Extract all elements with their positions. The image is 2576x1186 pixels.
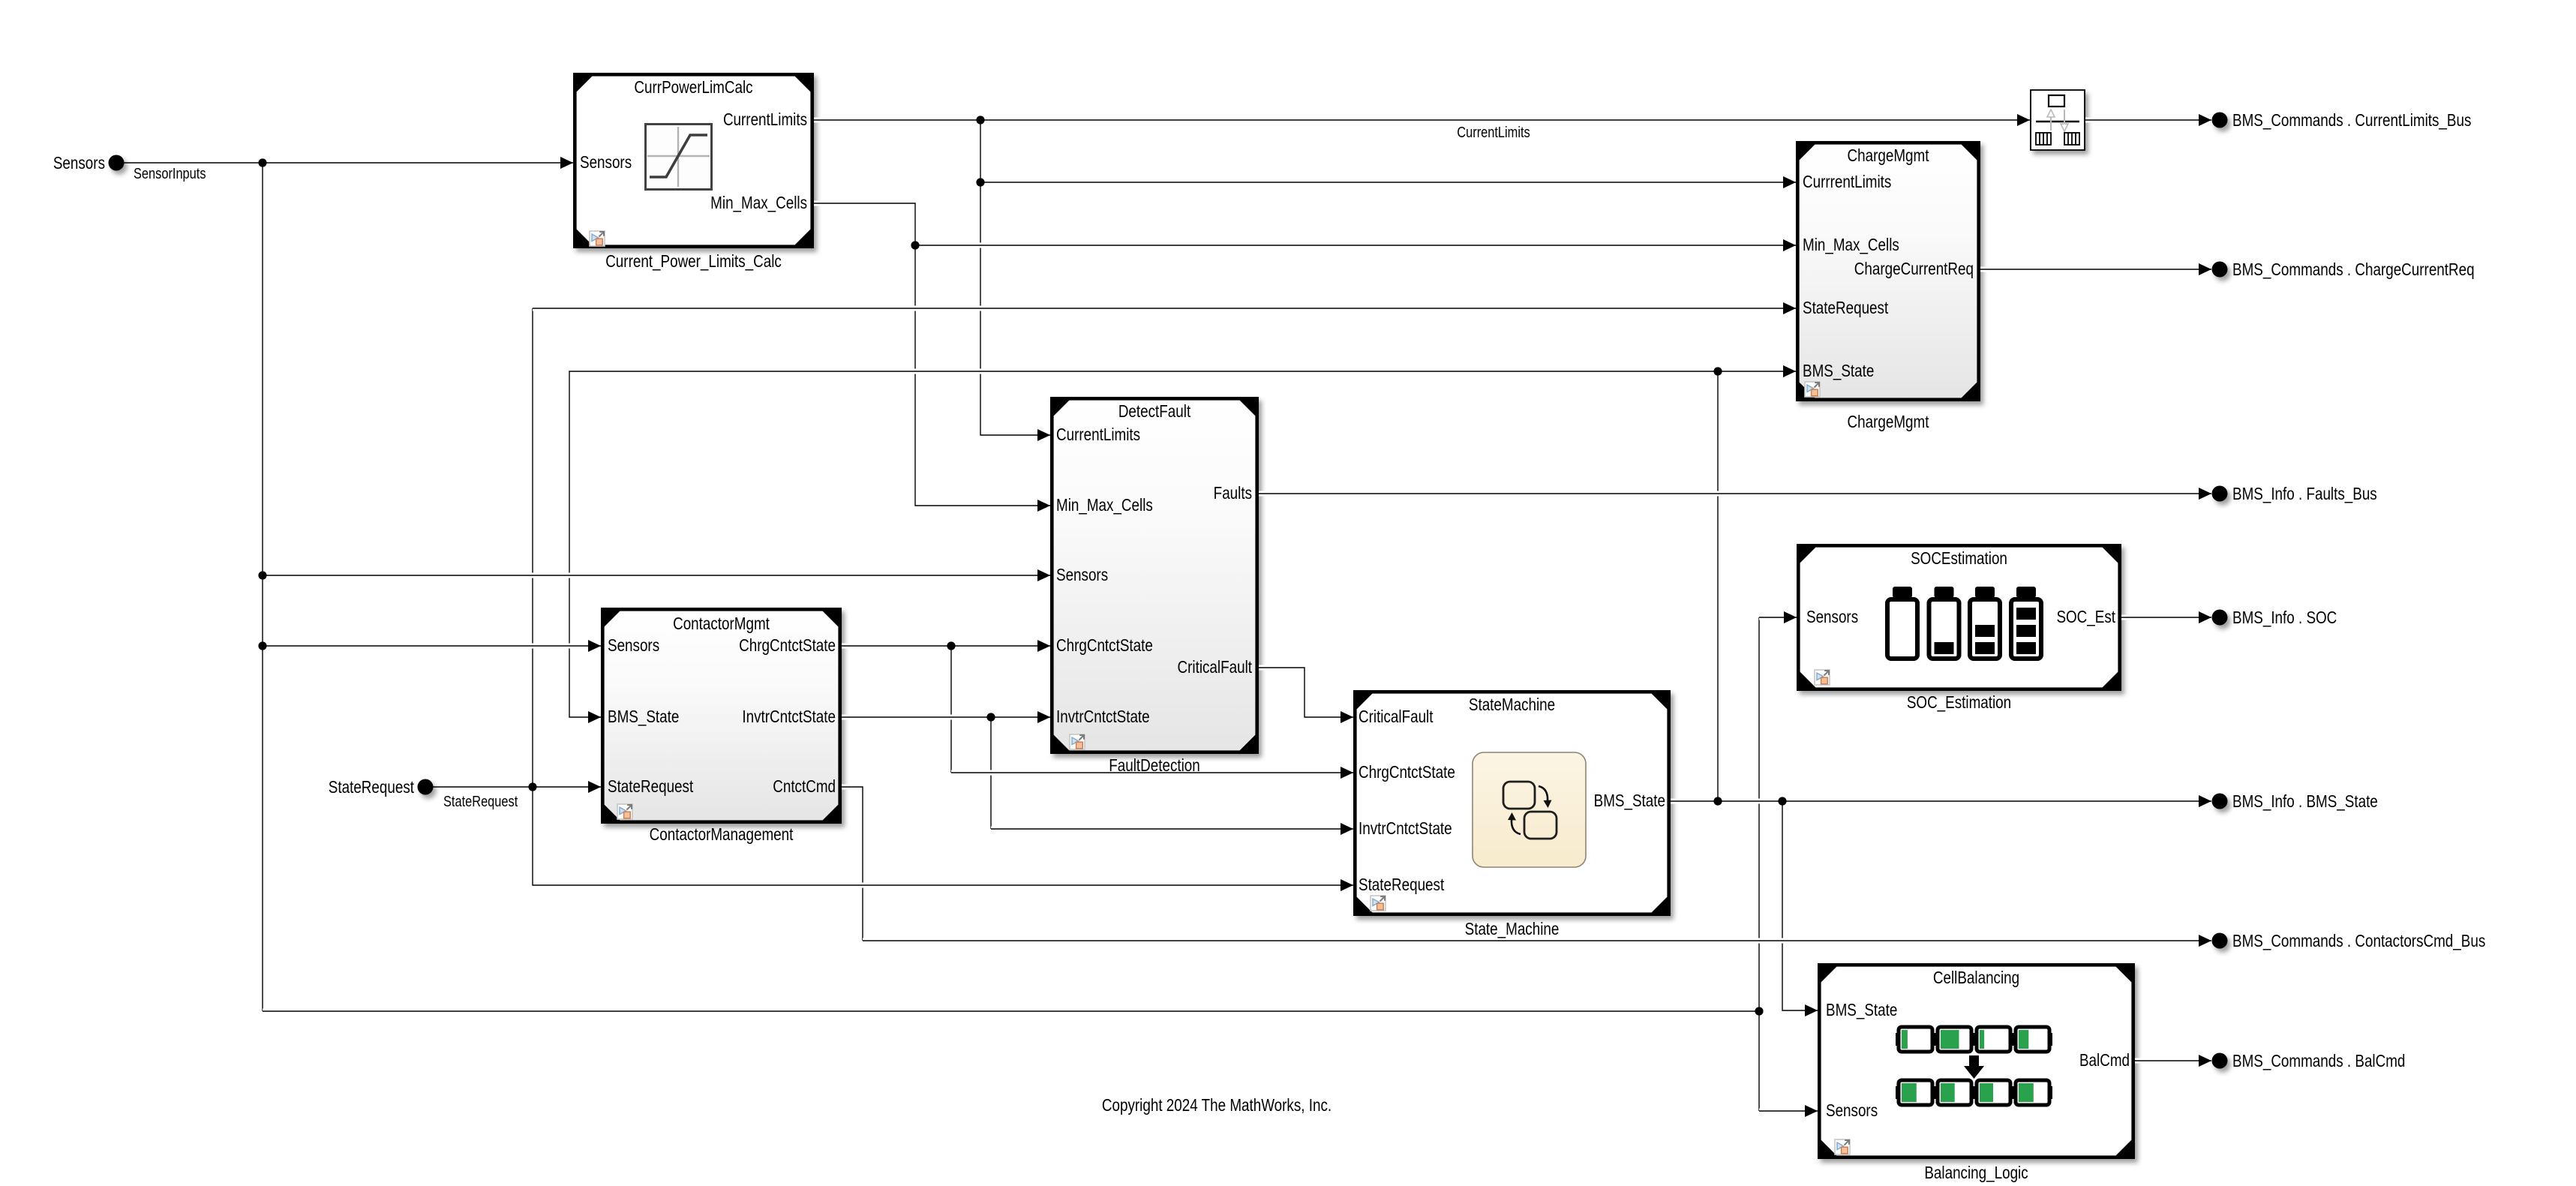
svg-text:StateRequest: StateRequest — [608, 777, 693, 796]
svg-text:Copyright 2024 The MathWorks,: Copyright 2024 The MathWorks, Inc. — [1102, 1096, 1332, 1115]
svg-text:BMS_Info . SOC: BMS_Info . SOC — [2232, 608, 2337, 627]
svg-text:State_Machine: State_Machine — [1465, 920, 1560, 938]
svg-text:BalCmd: BalCmd — [2079, 1051, 2130, 1070]
svg-text:BMS_Commands . ChargeCurrentRe: BMS_Commands . ChargeCurrentReq — [2232, 260, 2475, 279]
svg-text:Balancing_Logic: Balancing_Logic — [1924, 1163, 2028, 1182]
svg-text:BMS_State: BMS_State — [1594, 791, 1665, 810]
svg-text:StateRequest: StateRequest — [1359, 875, 1444, 894]
svg-text:CurrentLimits: CurrentLimits — [1056, 425, 1140, 444]
svg-text:BMS_State: BMS_State — [608, 707, 679, 726]
svg-text:ChrgCntctState: ChrgCntctState — [739, 636, 836, 655]
svg-text:Sensors: Sensors — [608, 636, 659, 655]
svg-text:Min_Max_Cells: Min_Max_Cells — [1803, 236, 1899, 254]
svg-text:CriticalFault: CriticalFault — [1359, 707, 1434, 726]
svg-text:Sensors: Sensors — [53, 154, 105, 173]
svg-text:StateRequest: StateRequest — [1803, 299, 1888, 317]
svg-text:BMS_State: BMS_State — [1803, 362, 1874, 380]
svg-text:BMS_Commands . ContactorsCmd_B: BMS_Commands . ContactorsCmd_Bus — [2232, 932, 2485, 950]
svg-text:InvtrCntctState: InvtrCntctState — [742, 707, 836, 726]
svg-text:ChargeMgmt: ChargeMgmt — [1848, 146, 1929, 165]
svg-text:DetectFault: DetectFault — [1118, 402, 1191, 421]
svg-text:SensorInputs: SensorInputs — [134, 164, 206, 182]
svg-text:Sensors: Sensors — [1826, 1101, 1878, 1120]
svg-text:Current_Power_Limits_Calc: Current_Power_Limits_Calc — [605, 252, 782, 271]
svg-text:CriticalFault: CriticalFault — [1178, 658, 1253, 677]
svg-text:StateRequest: StateRequest — [329, 778, 414, 797]
svg-text:BMS_Commands . BalCmd: BMS_Commands . BalCmd — [2232, 1052, 2405, 1070]
svg-text:StateRequest: StateRequest — [443, 792, 518, 809]
svg-text:BMS_State: BMS_State — [1826, 1001, 1897, 1019]
svg-text:ContactorManagement: ContactorManagement — [650, 825, 794, 844]
svg-text:BMS_Commands . CurrentLimits_B: BMS_Commands . CurrentLimits_Bus — [2232, 111, 2471, 130]
svg-text:Min_Max_Cells: Min_Max_Cells — [1056, 496, 1153, 515]
svg-text:SOC_Est: SOC_Est — [2056, 608, 2115, 626]
svg-text:BMS_Info . BMS_State: BMS_Info . BMS_State — [2232, 792, 2378, 811]
svg-text:CurrrentLimits: CurrrentLimits — [1803, 173, 1891, 191]
svg-text:Sensors: Sensors — [1056, 566, 1108, 584]
svg-text:CntctCmd: CntctCmd — [773, 777, 836, 796]
svg-text:CurrentLimits: CurrentLimits — [723, 110, 807, 129]
svg-text:Sensors: Sensors — [1806, 608, 1858, 626]
svg-text:Min_Max_Cells: Min_Max_Cells — [710, 194, 807, 212]
svg-text:ContactorMgmt: ContactorMgmt — [673, 614, 770, 633]
svg-text:CurrentLimits: CurrentLimits — [1457, 123, 1530, 140]
svg-text:BMS_Info . Faults_Bus: BMS_Info . Faults_Bus — [2232, 485, 2377, 503]
svg-text:CurrPowerLimCalc: CurrPowerLimCalc — [634, 78, 752, 97]
svg-text:StateMachine: StateMachine — [1469, 695, 1555, 714]
svg-text:FaultDetection: FaultDetection — [1109, 756, 1200, 775]
svg-text:Sensors: Sensors — [580, 153, 632, 172]
svg-text:CellBalancing: CellBalancing — [1933, 968, 2019, 987]
svg-text:InvtrCntctState: InvtrCntctState — [1359, 819, 1452, 838]
svg-text:SOCEstimation: SOCEstimation — [1911, 549, 2007, 568]
svg-text:SOC_Estimation: SOC_Estimation — [1907, 693, 2011, 712]
svg-text:ChargeCurrentReq: ChargeCurrentReq — [1854, 260, 1974, 278]
svg-text:ChrgCntctState: ChrgCntctState — [1056, 636, 1153, 655]
svg-text:ChrgCntctState: ChrgCntctState — [1359, 763, 1455, 782]
svg-text:InvtrCntctState: InvtrCntctState — [1056, 707, 1150, 726]
svg-text:Faults: Faults — [1214, 484, 1252, 503]
svg-text:ChargeMgmt: ChargeMgmt — [1848, 413, 1929, 431]
